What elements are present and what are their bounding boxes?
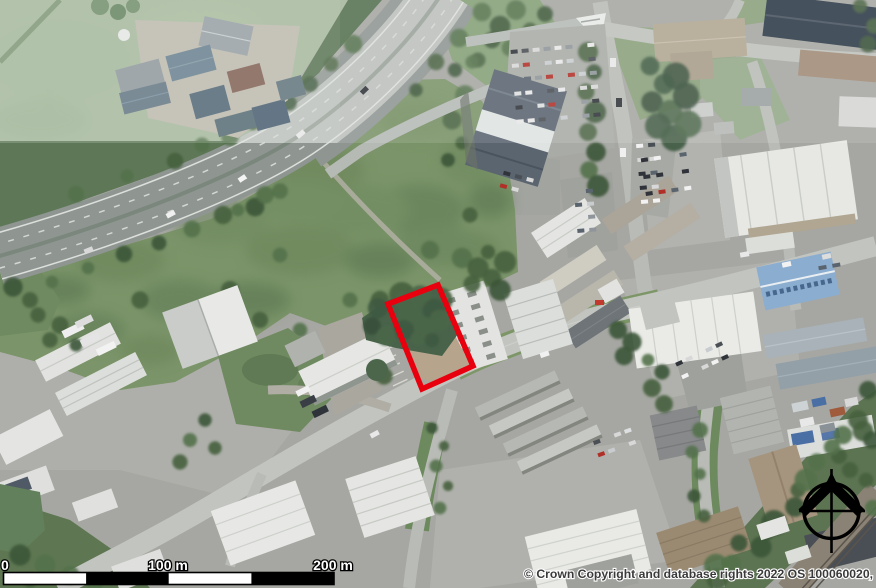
svg-text:© Crown Copyright and database: © Crown Copyright and database rights 20… xyxy=(524,567,873,581)
svg-text:100 m: 100 m xyxy=(148,557,188,573)
svg-text:0: 0 xyxy=(1,557,9,573)
svg-text:200 m: 200 m xyxy=(313,557,353,573)
